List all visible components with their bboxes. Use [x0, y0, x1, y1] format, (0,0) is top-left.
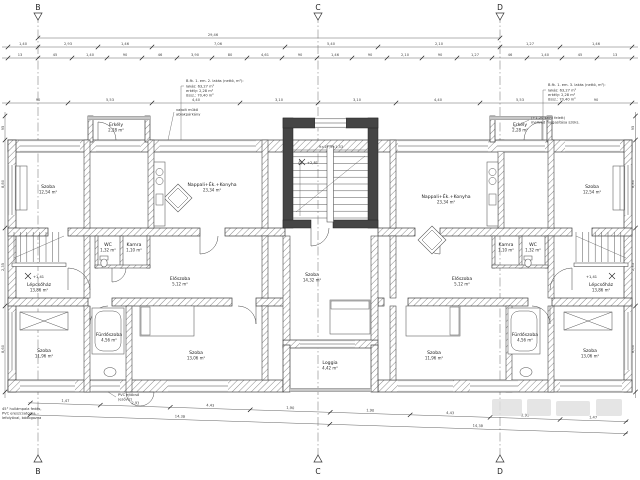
svg-text:4,40: 4,40 — [434, 98, 443, 102]
svg-text:1,47: 1,47 — [589, 415, 597, 419]
level-value-right: +1,41 — [586, 275, 597, 279]
svg-text:14,38: 14,38 — [473, 424, 484, 428]
svg-text:1,90: 1,90 — [366, 408, 375, 412]
svg-text:13: 13 — [18, 53, 23, 57]
room-label-szoba-br2: Szoba13,06 m² — [581, 348, 600, 358]
svg-text:1,46: 1,46 — [592, 42, 601, 46]
stair-spec: 9×17,5=1,53 — [319, 145, 343, 149]
svg-text:13: 13 — [613, 53, 618, 57]
svg-text:14,32 m²: 14,32 m² — [303, 277, 322, 282]
annotation-line: lakás: 63,27 m² — [548, 89, 577, 93]
room-label-loggia: Loggia4,42 m² — [322, 360, 338, 370]
svg-text:5,12 m²: 5,12 m² — [454, 281, 470, 286]
room-label-wc-right: WC1,32 m² — [525, 242, 541, 252]
svg-text:1,47: 1,47 — [61, 399, 69, 403]
room-label-szoba-tr: Szoba12,54 m² — [583, 184, 602, 194]
svg-text:1,40: 1,40 — [86, 53, 95, 57]
svg-text:12,54 m²: 12,54 m² — [39, 189, 58, 194]
section-flag-bottom-c: C — [314, 455, 322, 476]
svg-text:46: 46 — [158, 53, 163, 57]
stair-core-center: 9×17,5=1,53 +2,81 — [283, 118, 378, 228]
room-label-erkely-left: Erkély2,28 m² — [108, 121, 124, 132]
dim-chain-left: 958,802,358,60 — [1, 112, 7, 398]
bed-symbol — [406, 306, 460, 336]
annotation-title: B.fk. 1. em. 2. lakás (nettó, m²): — [186, 79, 244, 83]
dim-chain-total: 29,46 — [36, 33, 502, 40]
svg-text:4,40: 4,40 — [192, 98, 201, 102]
section-flag-top-d: D — [496, 3, 504, 20]
balcony-railing-left — [88, 116, 150, 120]
room-label-kamra-left: Kamra1,10 m² — [126, 242, 142, 252]
room-label-lepcsohaz-left: Lépcsőház13,86 m² — [27, 281, 52, 292]
room-label-kamra-right: Kamra1,10 m² — [498, 242, 514, 252]
svg-text:5,53: 5,53 — [516, 98, 524, 102]
note-windowsill: vakolt műkő ablakpárkány — [168, 108, 201, 140]
svg-text:90: 90 — [438, 53, 443, 57]
room-labels: Erkély2,28 m² Erkély2,28 m² Szoba12,54 m… — [27, 121, 614, 370]
svg-text:2,93: 2,93 — [64, 42, 72, 46]
svg-text:4,56 m²: 4,56 m² — [101, 337, 117, 342]
svg-text:5,12 m²: 5,12 m² — [172, 281, 188, 286]
svg-text:11,96 m²: 11,96 m² — [425, 355, 444, 360]
svg-text:1,27: 1,27 — [526, 42, 534, 46]
svg-text:90: 90 — [123, 53, 128, 57]
svg-text:1,32 m²: 1,32 m² — [100, 247, 116, 252]
svg-text:46: 46 — [508, 53, 513, 57]
svg-text:13,86 m²: 13,86 m² — [30, 287, 49, 292]
annotation-line: erkély: 2,28 m² — [548, 93, 576, 97]
note-line: (+1,20 szint felett) — [531, 116, 566, 120]
svg-text:2,93: 2,93 — [131, 401, 139, 405]
section-letter: C — [315, 3, 320, 12]
toilet-symbol — [100, 256, 108, 267]
svg-text:12,54 m²: 12,54 m² — [583, 189, 602, 194]
svg-text:13,86 m²: 13,86 m² — [592, 287, 611, 292]
stair-core-left: +1,41 — [12, 232, 66, 279]
section-flag-top-c: C — [314, 3, 322, 20]
note-line: lefolyóval, bádogozva — [2, 416, 41, 420]
svg-text:2,28 m²: 2,28 m² — [108, 127, 124, 132]
svg-text:8,60: 8,60 — [1, 344, 5, 353]
svg-text:1,40: 1,40 — [541, 53, 550, 57]
washbasin-symbol — [520, 368, 532, 377]
annotation-line: össz.: 70,40 m² — [186, 94, 214, 98]
svg-text:90: 90 — [298, 53, 303, 57]
annotation-line: erkély: 2,28 m² — [186, 89, 214, 93]
svg-text:4,43: 4,43 — [206, 403, 214, 407]
svg-text:1,32 m²: 1,32 m² — [525, 247, 541, 252]
section-letter: B — [35, 3, 40, 12]
svg-text:14,38: 14,38 — [175, 414, 186, 418]
sofa-symbol — [613, 166, 624, 210]
svg-text:1,40: 1,40 — [19, 42, 28, 46]
level-value-center: +2,81 — [307, 161, 318, 165]
room-label-szoba-bl: Szoba11,96 m² — [35, 348, 54, 358]
svg-text:45: 45 — [578, 53, 583, 57]
dim-total-value: 29,46 — [208, 33, 219, 37]
room-label-szoba-br: Szoba11,96 m² — [425, 350, 444, 360]
svg-text:4,56 m²: 4,56 m² — [517, 337, 533, 342]
section-flag-top-b: B — [34, 3, 42, 20]
svg-text:3,10: 3,10 — [275, 98, 284, 102]
note-line: 45° hullámpala fedés, — [2, 407, 42, 411]
room-label-lepcsohaz-right: Lépcsőház13,86 m² — [589, 281, 614, 292]
svg-text:1,46: 1,46 — [121, 42, 130, 46]
svg-text:1,27: 1,27 — [471, 53, 479, 57]
door-arc — [200, 236, 218, 254]
section-flag-bottom-d: D — [496, 455, 504, 476]
section-letter: C — [315, 467, 320, 476]
svg-text:95: 95 — [631, 126, 635, 131]
annotation-line: össz.: 70,40 m² — [548, 98, 576, 102]
loggia-railing — [290, 388, 371, 392]
bathtub-symbol — [508, 308, 540, 354]
note-line: mellvéd magasítása szüks. — [531, 121, 580, 125]
section-letter: D — [497, 3, 503, 12]
section-letter: D — [497, 467, 503, 476]
svg-text:3,90: 3,90 — [191, 53, 200, 57]
floor-plan-drawing: B C D B C D 29,46 1,402,931,4 — [0, 0, 640, 480]
room-label-eloszoba-right: Előszoba5,12 m² — [452, 276, 473, 286]
section-flag-bottom-b: B — [34, 455, 42, 476]
svg-text:4,61: 4,61 — [261, 53, 269, 57]
room-label-szoba-bl2: Szoba13,06 m² — [187, 350, 206, 360]
svg-text:8,80: 8,80 — [1, 179, 5, 188]
svg-text:23,34 m²: 23,34 m² — [203, 187, 222, 192]
svg-text:90: 90 — [368, 53, 373, 57]
svg-text:2,10: 2,10 — [401, 53, 410, 57]
svg-text:4,43: 4,43 — [446, 411, 454, 415]
bed-symbol — [140, 306, 194, 336]
svg-text:1,90: 1,90 — [286, 406, 295, 410]
room-label-szoba-tl: Szoba12,54 m² — [39, 184, 58, 194]
room-label-szoba-center: Szoba14,32 m² — [303, 272, 322, 282]
svg-text:2,10: 2,10 — [435, 42, 444, 46]
dim-chain-top-2: 13451,4090463,90804,61901,46902,10901,27… — [2, 53, 638, 60]
room-label-nappali-left: Nappali+Ék.+Konyha23,34 m² — [187, 180, 236, 192]
svg-text:5,40: 5,40 — [327, 42, 336, 46]
toilet-symbol — [524, 256, 532, 267]
svg-text:11,96 m²: 11,96 m² — [35, 353, 54, 358]
svg-text:90: 90 — [36, 98, 41, 102]
door-arc — [311, 228, 329, 246]
svg-text:90: 90 — [594, 98, 599, 102]
annotation-line: lakás: 63,27 m² — [186, 85, 215, 89]
svg-text:2,35: 2,35 — [1, 263, 5, 271]
svg-text:80: 80 — [228, 53, 233, 57]
annotation-apartment-right: B.fk. 1. em. 3. lakás (nettó, m²): lakás… — [543, 83, 606, 140]
door-arc — [238, 306, 256, 324]
bathtub-symbol — [92, 308, 124, 354]
kitchen-counter — [154, 162, 165, 226]
room-label-wc-left: WC1,32 m² — [100, 242, 116, 252]
sofa-symbol — [16, 166, 27, 210]
note-line: ablakpárkány — [176, 113, 201, 117]
svg-text:1,10 m²: 1,10 m² — [498, 247, 514, 252]
dim-chain-top-1: 1,402,931,467,065,402,101,271,46 — [2, 42, 638, 49]
svg-text:45: 45 — [53, 53, 58, 57]
level-mark-left — [25, 273, 31, 279]
watermark-artifact — [492, 399, 622, 416]
door-arc — [112, 268, 126, 282]
kitchen-counter — [487, 162, 498, 226]
bed-symbol — [330, 300, 370, 334]
room-label-nappali-right: Nappali+Ék.+Konyha23,34 m² — [421, 192, 470, 204]
annotation-title: B.fk. 1. em. 3. lakás (nettó, m²): — [548, 83, 606, 87]
svg-text:13,06 m²: 13,06 m² — [187, 355, 206, 360]
note-downpipe: PVC ejtőcső (esővíz) — [108, 392, 139, 402]
note-line: vakolt műkő — [176, 108, 198, 112]
svg-text:7,06: 7,06 — [214, 42, 223, 46]
svg-text:13,06 m²: 13,06 m² — [581, 353, 600, 358]
room-label-eloszoba-left: Előszoba5,12 m² — [170, 276, 191, 286]
svg-text:4,42 m²: 4,42 m² — [322, 365, 338, 370]
dim-chain-mid: 905,534,403,103,104,405,5390 — [2, 98, 638, 105]
washbasin-symbol — [104, 368, 116, 377]
svg-text:23,34 m²: 23,34 m² — [437, 199, 456, 204]
svg-text:5,53: 5,53 — [106, 98, 114, 102]
note-line: PVC ejtőcső — [118, 393, 139, 397]
section-letter: B — [35, 467, 40, 476]
svg-text:1,10 m²: 1,10 m² — [126, 247, 142, 252]
note-gutter: 45° hullámpala fedés, PVC ereszcsatorna,… — [2, 407, 42, 420]
svg-text:95: 95 — [1, 126, 5, 131]
svg-text:1,46: 1,46 — [331, 53, 340, 57]
svg-text:3,10: 3,10 — [353, 98, 362, 102]
level-value-left: +1,41 — [33, 275, 44, 279]
stair-core-right: +1,41 — [574, 232, 628, 279]
svg-text:2,28 m²: 2,28 m² — [512, 127, 528, 132]
level-mark-right — [609, 273, 615, 279]
